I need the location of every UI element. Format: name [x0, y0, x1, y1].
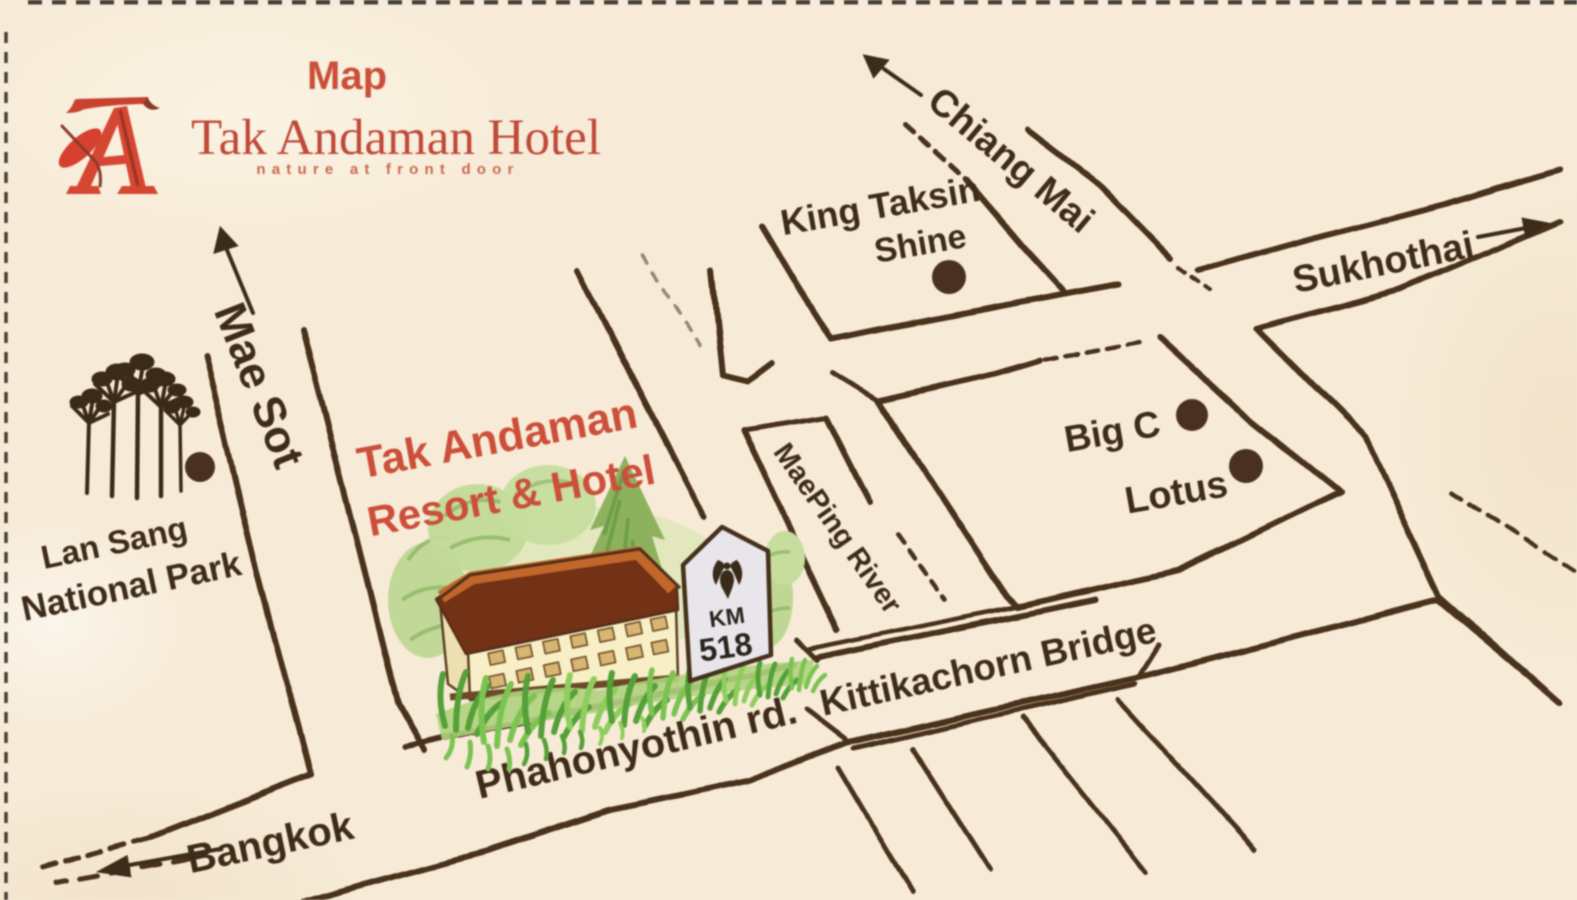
svg-text:nature at front door: nature at front door [256, 161, 519, 178]
svg-text:518: 518 [697, 625, 755, 668]
svg-text:Map: Map [307, 54, 387, 98]
svg-text:Tak Andaman Hotel: Tak Andaman Hotel [191, 110, 601, 166]
